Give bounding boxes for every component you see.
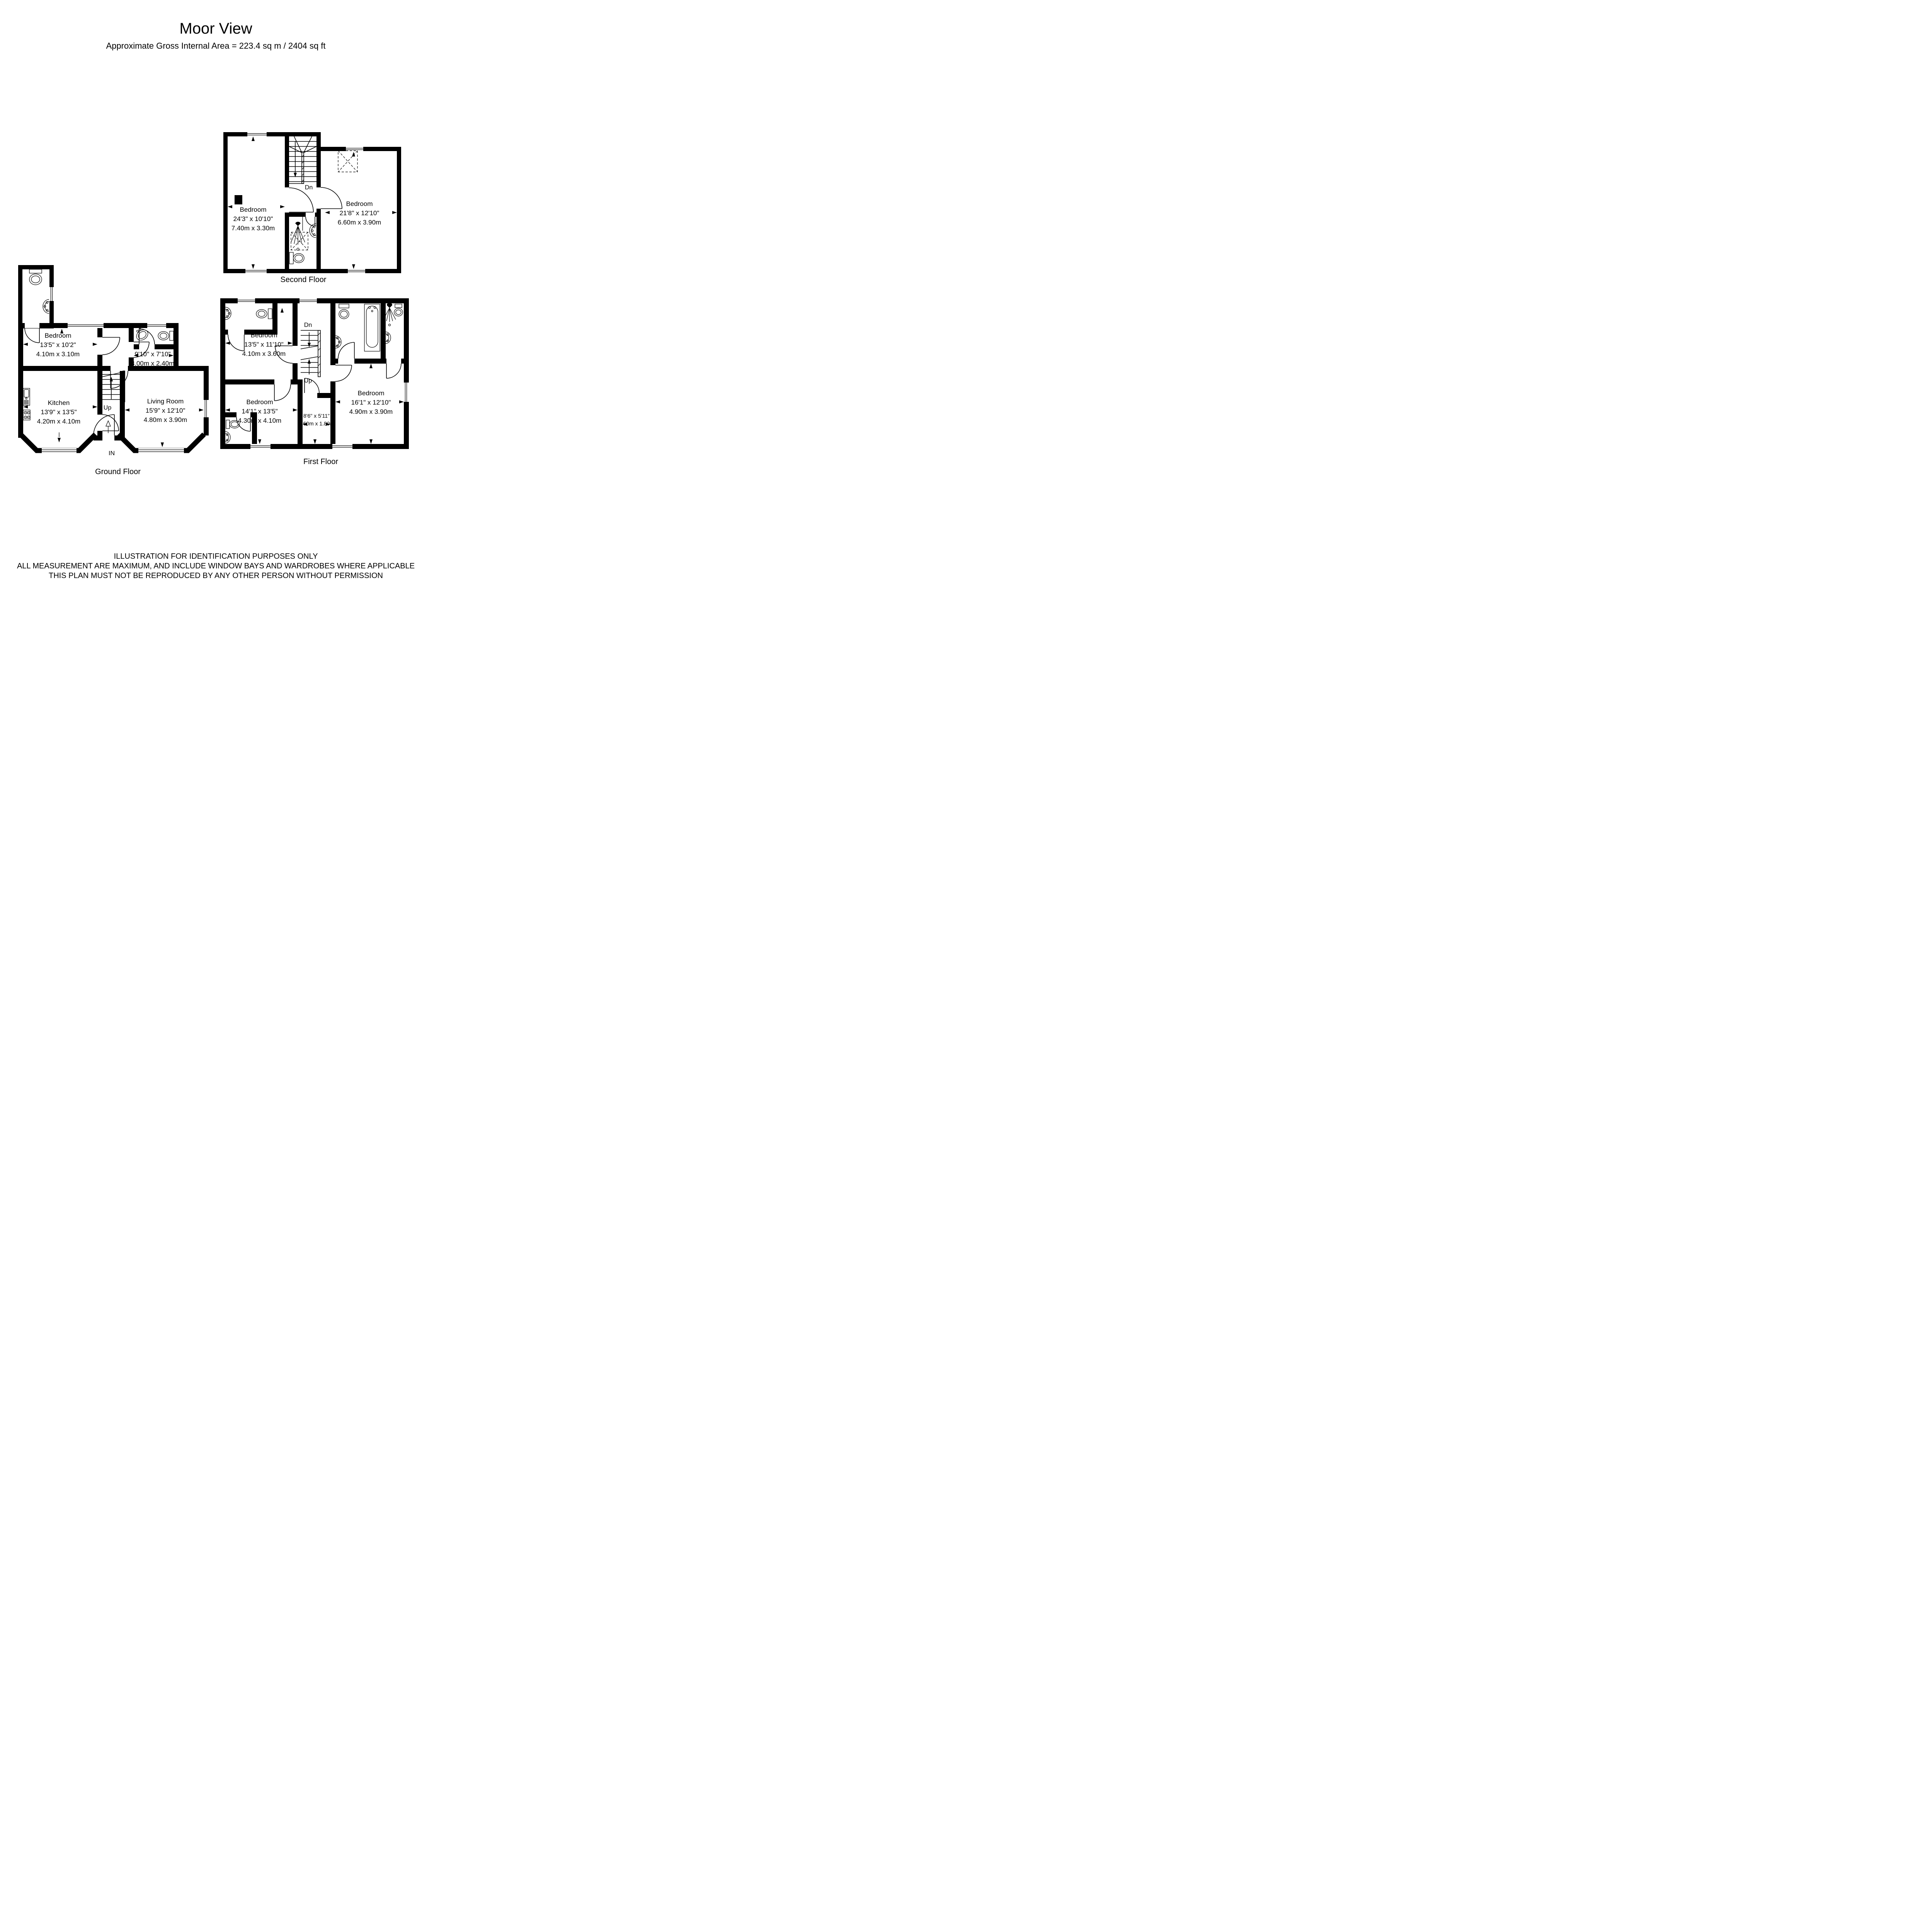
disclaimer: ILLUSTRATION FOR IDENTIFICATION PURPOSES… xyxy=(0,552,432,581)
room-size-metric: 4.90m x 3.90m xyxy=(349,407,393,417)
stairs-icon xyxy=(289,136,316,184)
room-label-living-room: Living Room 15'9" x 12'10" 4.80m x 3.90m xyxy=(144,397,187,425)
stairs-down-label: Dn xyxy=(304,322,312,329)
toilet-icon xyxy=(158,331,174,340)
room-name: Bedroom xyxy=(349,389,393,398)
stairs-down-label: Dn xyxy=(305,184,313,191)
room-size-imperial: 13'9" x 13'5" xyxy=(37,408,80,417)
disclaimer-line-2: ALL MEASUREMENT ARE MAXIMUM, AND INCLUDE… xyxy=(0,561,432,571)
room-name: Bedroom xyxy=(231,205,275,214)
first-floor-plan: Bedroom 13'5" x 11'10" 4.10m x 3.60m Bed… xyxy=(216,296,413,466)
room-label-store: 8'6" x 5'11" 2.60m x 1.80m xyxy=(299,412,335,427)
floor-caption: Second Floor xyxy=(281,276,327,284)
room-size-imperial: 15'9" x 12'10" xyxy=(144,406,187,415)
room-size-metric: 6.60m x 3.90m xyxy=(338,218,381,227)
room-size-imperial: 13'5" x 10'2" xyxy=(36,340,80,350)
hob-icon xyxy=(23,410,30,420)
room-size-imperial: 14'1" x 13'5" xyxy=(238,407,281,416)
entrance-arrow-icon xyxy=(106,421,111,433)
sink-icon xyxy=(43,299,49,313)
floor-caption: Ground Floor xyxy=(95,468,141,476)
page-subtitle: Approximate Gross Internal Area = 223.4 … xyxy=(0,41,432,51)
bath-icon xyxy=(364,304,380,351)
room-label-bedroom: Bedroom 21'8" x 12'10" 6.60m x 3.90m xyxy=(338,199,381,227)
room-size-metric: 4.20m x 4.10m xyxy=(37,417,80,426)
room-name: Bedroom xyxy=(338,199,381,209)
stairs-up-label: Up xyxy=(304,378,312,384)
room-label-bedroom: Bedroom 24'3" x 10'10" 7.40m x 3.30m xyxy=(231,205,275,233)
ground-floor-drawing xyxy=(15,261,216,477)
wardrobe-icon xyxy=(338,151,357,172)
shower-icon xyxy=(291,217,305,250)
room-size-imperial: 21'8" x 12'10" xyxy=(338,209,381,218)
sink-icon xyxy=(386,332,391,344)
chimney-icon xyxy=(235,195,242,204)
room-size-imperial: 16'1" x 12'10" xyxy=(349,398,393,407)
sink-icon xyxy=(335,336,341,348)
room-size-metric: 3.00m x 2.40m xyxy=(131,359,174,368)
room-size-metric: 2.60m x 1.80m xyxy=(299,420,335,427)
kitchen-sink-icon xyxy=(23,388,30,405)
sink-icon xyxy=(225,432,230,443)
first-floor-drawing xyxy=(216,296,413,466)
sink-icon xyxy=(225,307,231,320)
page-title: Moor View xyxy=(0,20,432,37)
room-size-imperial: 8'6" x 5'11" xyxy=(299,412,335,420)
room-size-metric: 4.80m x 3.90m xyxy=(144,415,187,425)
entrance-label: IN xyxy=(109,450,115,457)
ground-floor-plan: Bedroom 13'5" x 10'2" 4.10m x 3.10m 9'10… xyxy=(15,261,216,477)
room-label-kitchen: Kitchen 13'9" x 13'5" 4.20m x 4.10m xyxy=(37,398,80,426)
room-label-store: 9'10" x 7'10" 3.00m x 2.40m xyxy=(131,350,174,368)
room-label-bedroom: Bedroom 16'1" x 12'10" 4.90m x 3.90m xyxy=(349,389,393,417)
stairs-up-label: Up xyxy=(104,405,111,412)
toilet-icon xyxy=(394,304,403,316)
room-name: Bedroom xyxy=(36,331,80,340)
toilet-icon xyxy=(339,304,349,319)
room-size-imperial: 9'10" x 7'10" xyxy=(131,350,174,359)
room-label-bedroom: Bedroom 13'5" x 10'2" 4.10m x 3.10m xyxy=(36,331,80,359)
room-size-metric: 4.10m x 3.60m xyxy=(242,349,286,359)
floorplan-page: Moor View Approximate Gross Internal Are… xyxy=(0,0,432,611)
room-name: Bedroom xyxy=(238,398,281,407)
toilet-icon xyxy=(226,420,240,429)
toilet-icon xyxy=(29,269,42,285)
disclaimer-line-1: ILLUSTRATION FOR IDENTIFICATION PURPOSES… xyxy=(0,552,432,561)
sink-icon xyxy=(134,328,150,342)
second-floor-plan: Bedroom 24'3" x 10'10" 7.40m x 3.30m Bed… xyxy=(218,129,404,284)
toilet-icon xyxy=(256,309,272,319)
stairs-icon xyxy=(301,330,320,377)
room-size-metric: 4.30m x 4.10m xyxy=(238,416,281,425)
room-label-bedroom: Bedroom 13'5" x 11'10" 4.10m x 3.60m xyxy=(242,331,286,359)
room-label-bedroom: Bedroom 14'1" x 13'5" 4.30m x 4.10m xyxy=(238,398,281,425)
door-arc xyxy=(289,187,342,226)
room-size-metric: 7.40m x 3.30m xyxy=(231,224,275,233)
room-name: Living Room xyxy=(144,397,187,406)
room-size-imperial: 24'3" x 10'10" xyxy=(231,214,275,224)
disclaimer-line-3: THIS PLAN MUST NOT BE REPRODUCED BY ANY … xyxy=(0,571,432,581)
floor-caption: First Floor xyxy=(303,457,338,466)
room-size-metric: 4.10m x 3.10m xyxy=(36,350,80,359)
room-size-imperial: 13'5" x 11'10" xyxy=(242,340,286,349)
room-name: Bedroom xyxy=(242,331,286,340)
shower-tray xyxy=(291,232,308,250)
room-name: Kitchen xyxy=(37,398,80,408)
toilet-icon xyxy=(289,252,304,264)
